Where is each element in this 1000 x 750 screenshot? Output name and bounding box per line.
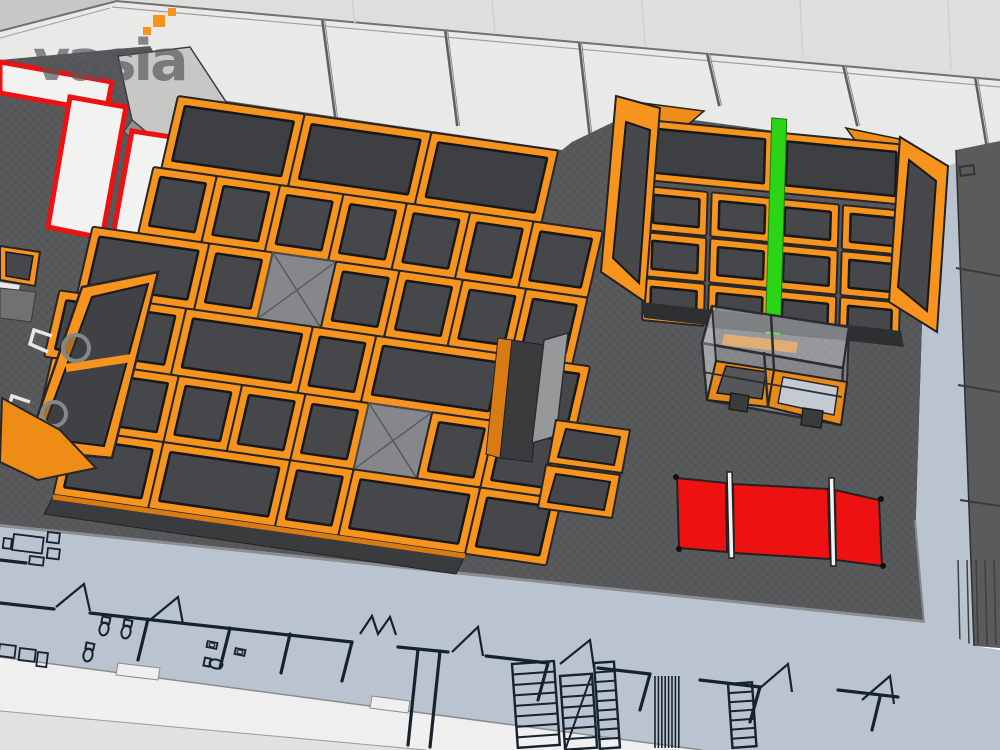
trampoline-bed xyxy=(309,337,366,392)
trampoline-bed xyxy=(652,241,699,273)
panel-post xyxy=(829,478,836,566)
red-panel-right xyxy=(835,490,882,566)
trampoline-bed xyxy=(286,470,343,525)
trampoline-bed xyxy=(149,177,206,232)
logo-pixel xyxy=(153,15,165,27)
ladder-rung xyxy=(597,709,617,710)
red-panel-middle xyxy=(733,484,830,559)
trampoline-bed xyxy=(466,222,523,277)
logo-text: vasia xyxy=(33,28,186,94)
ladder-rung xyxy=(598,719,618,720)
trampoline-bed xyxy=(403,213,460,268)
logo-pixel xyxy=(143,27,151,35)
trampoline-bed xyxy=(529,232,592,288)
panel-post xyxy=(727,472,734,558)
panel-corner-tick xyxy=(878,496,884,502)
cage-ladder xyxy=(729,393,749,412)
trampoline-bed xyxy=(395,281,452,336)
trampoline-bed xyxy=(339,204,396,259)
ladder-rung xyxy=(599,738,619,739)
trampoline-bed xyxy=(276,195,333,250)
ladder-rung xyxy=(595,681,615,682)
trampoline-bed xyxy=(458,290,515,345)
ladder-rung xyxy=(597,700,617,701)
trampoline-bed xyxy=(205,253,262,308)
scene-svg: vasia xyxy=(0,0,1000,750)
trampoline-bed xyxy=(428,422,485,477)
trampoline-park-render: vasia xyxy=(0,0,1000,750)
ladder-rung xyxy=(596,690,616,691)
small-trampoline-bed xyxy=(6,252,33,280)
logo-pixel xyxy=(168,8,176,16)
trampoline-bed xyxy=(301,404,358,459)
trampoline-bed xyxy=(332,272,389,327)
trampoline-bed xyxy=(784,207,831,239)
gray-slab-small xyxy=(0,288,36,322)
panel-corner-tick xyxy=(676,546,682,552)
red-panel-left xyxy=(677,478,727,552)
trampoline-bed xyxy=(783,253,830,285)
trampoline-bed xyxy=(849,260,894,292)
trampoline-bed xyxy=(174,386,231,441)
trampoline-bed xyxy=(850,214,895,246)
trampoline-bed xyxy=(654,129,765,184)
trampoline-bed xyxy=(653,195,700,227)
ladder-rung xyxy=(599,728,619,729)
panel-corner-tick xyxy=(880,563,886,569)
trampoline-bed xyxy=(786,141,897,196)
panel-corner-tick xyxy=(673,474,679,480)
trampoline-bed xyxy=(212,186,269,241)
cage-ladder xyxy=(801,408,823,428)
ladder-rung xyxy=(595,671,615,672)
trampoline-bed xyxy=(717,247,764,279)
basketball-hoop-icon xyxy=(63,335,89,361)
trampoline-bed xyxy=(238,395,295,450)
trampoline-bed xyxy=(719,201,766,233)
